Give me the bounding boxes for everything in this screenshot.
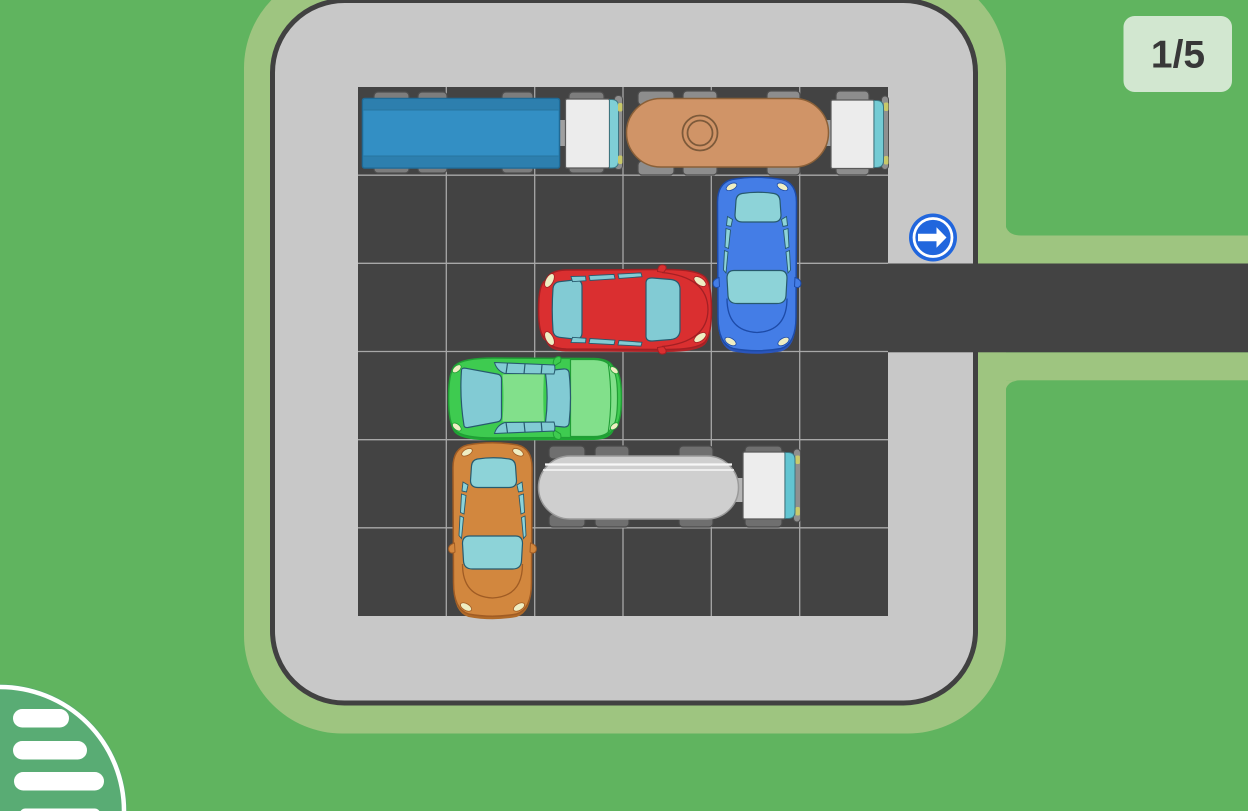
svg-text:1/5: 1/5: [1151, 34, 1205, 77]
